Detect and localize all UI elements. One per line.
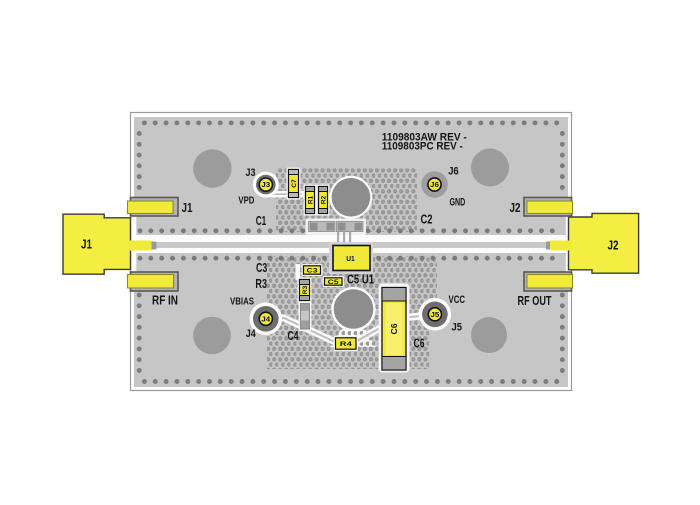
- svg-text:VPD: VPD: [238, 196, 254, 207]
- svg-text:U1: U1: [346, 256, 355, 263]
- svg-text:C4: C4: [288, 329, 299, 343]
- svg-text:J5: J5: [452, 322, 463, 334]
- svg-text:C5: C5: [328, 279, 340, 286]
- svg-text:GND: GND: [450, 196, 466, 208]
- svg-text:J6: J6: [448, 166, 459, 178]
- svg-text:C6: C6: [390, 323, 399, 335]
- svg-text:J6: J6: [430, 182, 439, 189]
- svg-text:C3: C3: [307, 268, 319, 275]
- svg-text:J3: J3: [261, 182, 270, 189]
- svg-text:R3: R3: [255, 277, 267, 291]
- svg-text:C5 U1: C5 U1: [347, 273, 374, 287]
- svg-text:R4: R4: [340, 341, 353, 348]
- svg-text:J1: J1: [182, 201, 193, 215]
- svg-text:C3: C3: [256, 261, 267, 275]
- svg-text:RF OUT: RF OUT: [518, 294, 552, 308]
- svg-text:R1: R1: [307, 195, 314, 204]
- svg-text:VCC: VCC: [449, 294, 466, 306]
- svg-text:J1: J1: [81, 238, 92, 252]
- svg-text:C6: C6: [414, 337, 425, 351]
- svg-text:J2: J2: [510, 201, 521, 215]
- svg-text:J4: J4: [261, 316, 270, 323]
- svg-text:C2: C2: [421, 213, 433, 227]
- svg-text:J2: J2: [608, 239, 619, 253]
- svg-text:J3: J3: [246, 167, 256, 179]
- svg-text:J4: J4: [246, 328, 257, 340]
- svg-text:R2: R2: [320, 195, 327, 204]
- svg-text:RF IN: RF IN: [152, 294, 178, 308]
- svg-text:VBIAS: VBIAS: [230, 297, 254, 308]
- svg-text:1109803PC REV -: 1109803PC REV -: [382, 141, 463, 153]
- svg-text:R3: R3: [302, 285, 309, 294]
- svg-text:J5: J5: [430, 312, 439, 319]
- svg-text:C1: C1: [256, 214, 267, 228]
- svg-text:C7: C7: [291, 179, 298, 188]
